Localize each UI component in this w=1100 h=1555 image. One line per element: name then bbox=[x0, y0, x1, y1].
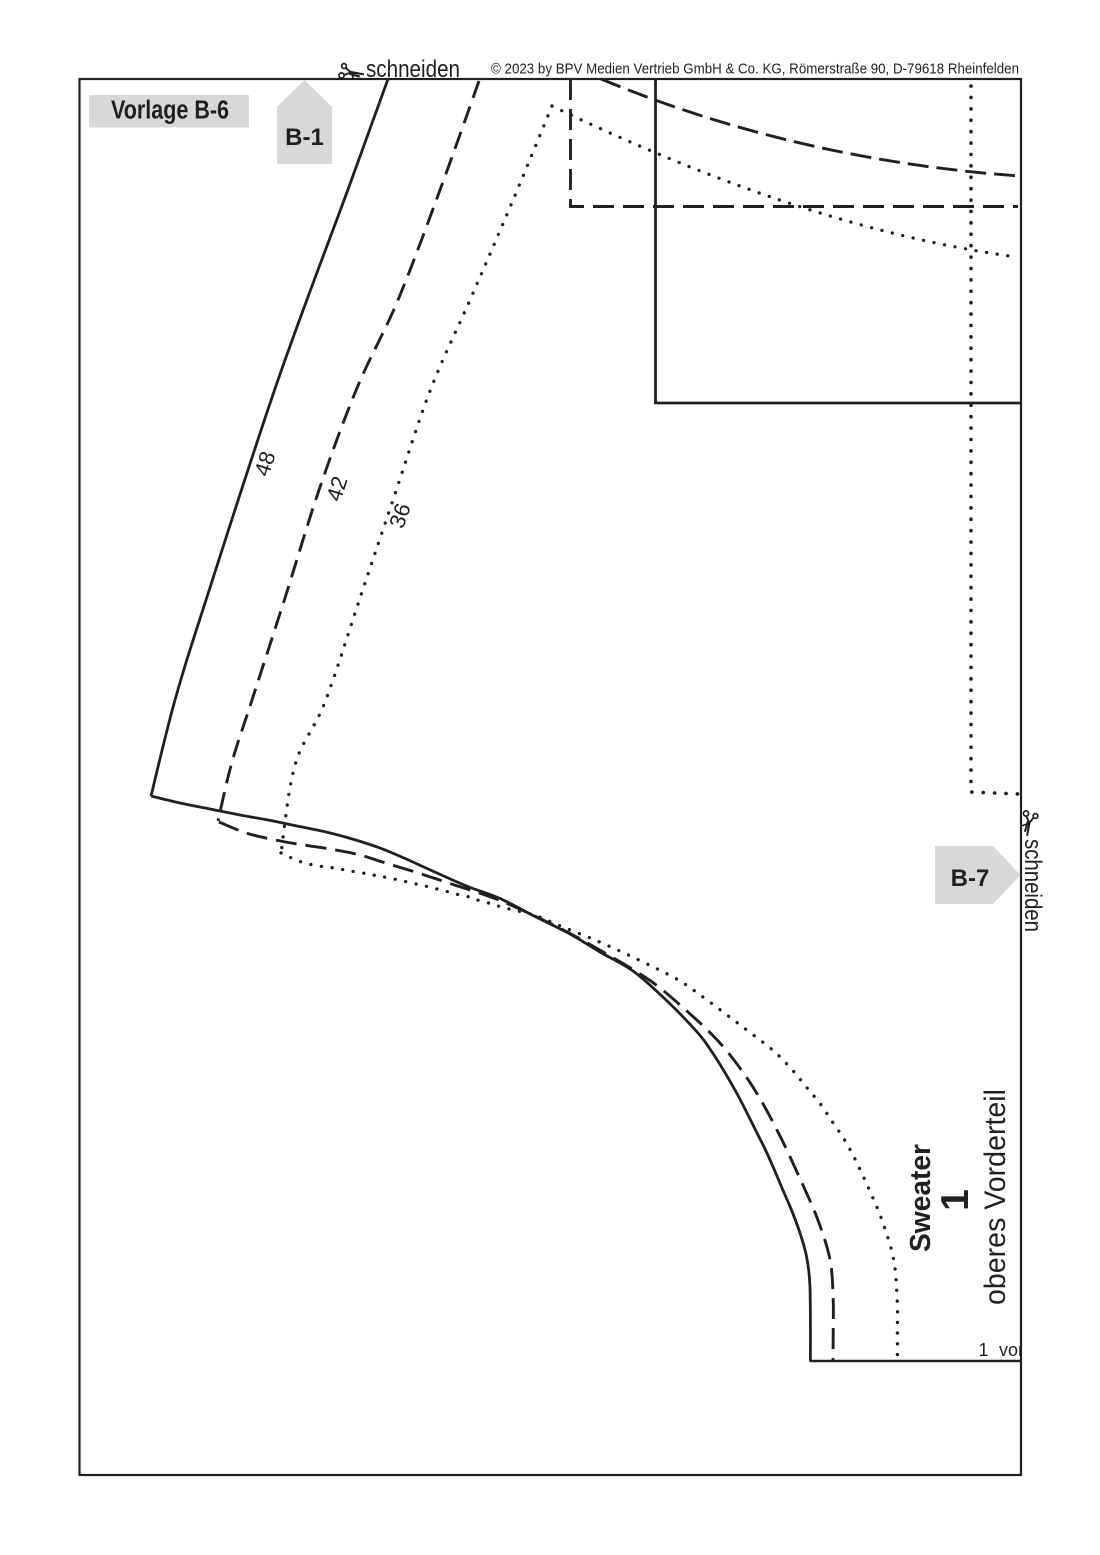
svg-text:Sweater: Sweater bbox=[905, 1144, 937, 1252]
svg-text:B-7: B-7 bbox=[951, 865, 990, 892]
svg-text:© 2023 by BPV Medien Vertrieb: © 2023 by BPV Medien Vertrieb GmbH & Co.… bbox=[491, 61, 1019, 78]
svg-text:1: 1 bbox=[934, 1189, 977, 1211]
svg-text:B-1: B-1 bbox=[285, 124, 324, 151]
svg-text:schneiden: schneiden bbox=[366, 56, 460, 83]
svg-text:schneiden: schneiden bbox=[1019, 839, 1046, 932]
svg-text:oberes Vorderteil: oberes Vorderteil bbox=[979, 1089, 1012, 1305]
svg-text:Vorlage B-6: Vorlage B-6 bbox=[111, 97, 229, 125]
svg-text:1: 1 bbox=[979, 1340, 989, 1360]
